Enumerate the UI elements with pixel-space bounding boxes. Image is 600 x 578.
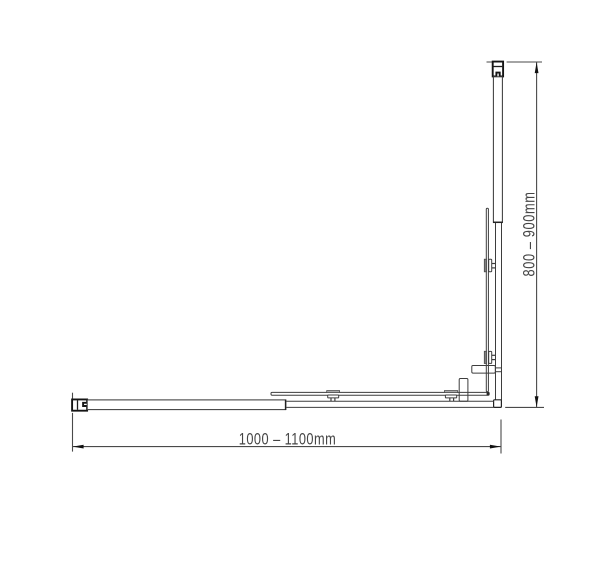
svg-text:800 – 900mm: 800 – 900mm bbox=[521, 192, 539, 277]
svg-text:1000 – 1100mm: 1000 – 1100mm bbox=[239, 431, 336, 449]
